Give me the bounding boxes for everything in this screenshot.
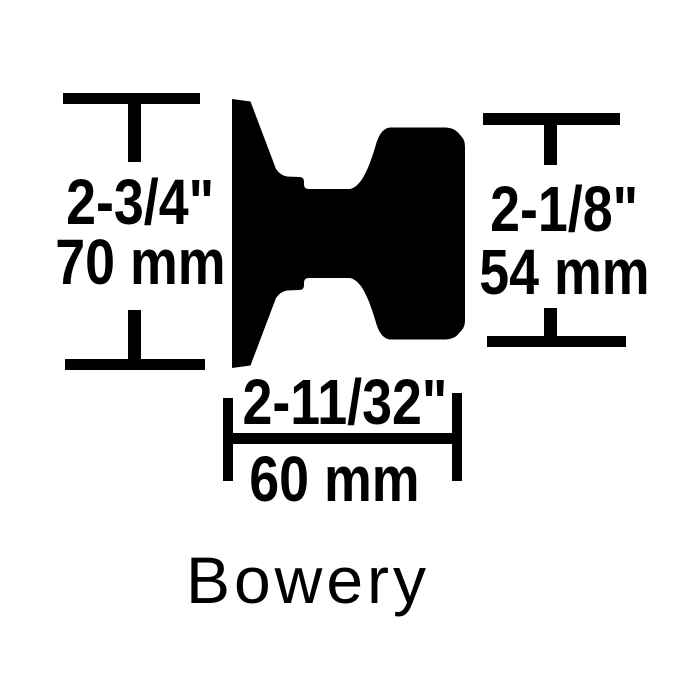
rose-height-imperial-value: 2-3/4" (66, 170, 214, 234)
rose-height-bottom-bar-tick (65, 359, 205, 370)
rose-height-top-bar-tick (63, 93, 200, 104)
product-name-label: Bowery (158, 547, 458, 613)
door-knob-silhouette-icon (225, 90, 470, 380)
rose-height-imperial-label: 2-3/4" (20, 170, 260, 234)
knob-height-imperial-value: 2-1/8" (490, 177, 638, 241)
rose-height-bottom-stem-tick (128, 310, 141, 360)
rose-height-metric-value: 70 mm (55, 230, 225, 294)
knob-height-bottom-stem-tick (544, 308, 557, 337)
knob-height-metric-value: 54 mm (479, 240, 649, 304)
knob-height-bottom-bar-tick (487, 336, 626, 347)
knob-height-imperial-label: 2-1/8" (444, 177, 684, 241)
product-name-value: Bowery (186, 543, 430, 617)
knob-depth-imperial-label: 2-11/32" (223, 370, 463, 434)
knob-depth-metric-value: 60 mm (249, 447, 419, 511)
knob-depth-metric-label: 60 mm (214, 447, 454, 511)
dimension-diagram: 2-3/4" 70 mm 2-1/8" 54 mm 2-11/32" 60 mm… (0, 0, 700, 700)
knob-depth-imperial-value: 2-11/32" (243, 370, 448, 434)
knob-height-metric-label: 54 mm (444, 240, 684, 304)
door-knob-profile-path (232, 99, 465, 368)
rose-height-top-stem-tick (128, 104, 141, 162)
rose-height-metric-label: 70 mm (20, 230, 260, 294)
knob-height-top-stem-tick (544, 125, 557, 165)
knob-height-top-bar-tick (483, 113, 620, 125)
